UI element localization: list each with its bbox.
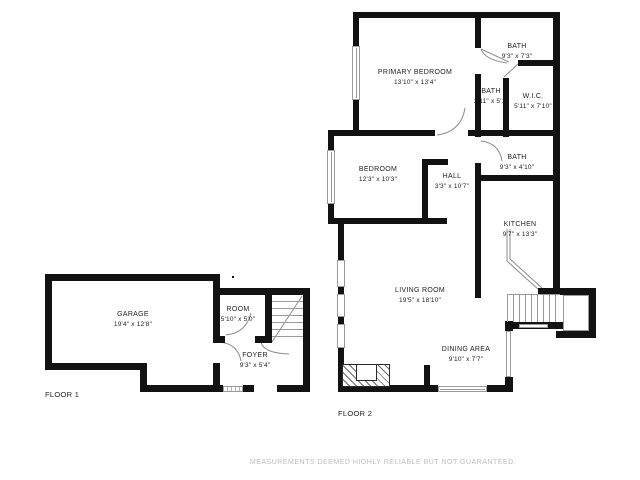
wall [303,288,310,392]
room-label-living-room: LIVING ROOM 19'5" x 18'10" [395,286,445,305]
wall [45,274,220,281]
wall [213,336,225,343]
room-dims: 5'10" x 5'0" [221,315,255,324]
room-name: BATH [500,153,534,163]
room-dims: 9'10" x 7'7" [442,355,490,364]
room-label-garage: GARAGE 19'4" x 12'8" [114,310,152,329]
tick-mark [366,132,368,134]
tick-mark [341,232,343,234]
window [337,324,345,348]
wall [338,287,344,294]
room-name: BATH [502,42,533,52]
room-name: PRIMARY BEDROOM [378,68,452,78]
window [438,386,487,392]
room-dims: 19'4" x 12'8" [114,320,152,329]
staircase-floor1 [272,295,303,342]
wall [338,317,344,324]
wall [328,136,334,150]
disclaimer-text: MEASUREMENTS DEEMED HIGHLY RELIABLE BUT … [250,459,516,466]
room-name: W.I.C. [514,92,552,102]
wall [243,385,254,392]
room-label-bath-small: BATH 2'11" x 5'1" [474,87,508,106]
window [506,331,511,377]
wall [475,163,481,298]
window [519,324,548,328]
wall [353,12,560,18]
staircase-floor2 [507,294,560,322]
wall [505,377,513,392]
wall [213,363,220,392]
wall [475,175,560,181]
window [223,386,243,392]
fireplace-firebox [356,364,377,381]
wall [328,130,435,136]
room-dims: 3'3" x 10'7" [435,182,469,191]
wall [338,218,344,260]
room-label-bath-top: BATH 9'3" x 7'3" [502,42,533,61]
room-dims: 9'7" x 13'3" [503,230,537,239]
room-label-dining-area: DINING AREA 9'10" x 7'7" [442,345,490,364]
tick-mark [390,220,392,222]
floor2-label: FLOOR 2 [338,409,372,418]
room-name: DINING AREA [442,345,490,355]
window [327,150,335,204]
tick-mark [128,365,130,367]
wall [424,365,430,392]
wall [422,159,448,165]
tick-mark [505,14,507,16]
room-dims: 9'3" x 7'3" [502,52,533,61]
wall [556,331,596,338]
room-label-bedroom: BEDROOM 12'3" x 10'3" [359,165,397,184]
wall [213,274,220,342]
room-name: ROOM [221,305,255,315]
bay-window [563,295,589,331]
tick-mark [412,387,414,389]
room-dims: 2'11" x 5'1" [474,97,508,106]
wall [353,12,359,48]
room-name: FOYER [240,351,271,361]
room-dims: 13'10" x 13'4" [378,78,452,87]
room-label-bath-mid: BATH 9'3" x 4'10" [500,153,534,172]
room-name: GARAGE [114,310,152,320]
room-dims: 5'11" x 7'10" [514,102,552,111]
room-name: BEDROOM [359,165,397,175]
room-name: KITCHEN [503,220,537,230]
tick-mark [198,387,200,389]
room-name: BATH [474,87,508,97]
wall [45,274,52,370]
room-name: LIVING ROOM [395,286,445,296]
door-leaf [504,64,518,77]
room-label-wic: W.I.C. 5'11" x 7'10" [514,92,552,111]
wall [475,12,481,48]
wall [45,363,147,370]
wall [140,385,223,392]
wall [553,12,560,295]
room-label-primary-bedroom: PRIMARY BEDROOM 13'10" x 13'4" [378,68,452,87]
tick-mark [556,130,558,132]
room-label-hall: HALL 3'3" x 10'7" [435,172,469,191]
room-dims: 12'3" x 10'3" [359,175,397,184]
room-name: HALL [435,172,469,182]
wall [255,336,272,343]
window [337,294,345,317]
wall [468,130,560,136]
room-label-kitchen: KITCHEN 9'7" x 13'3" [503,220,537,239]
room-label-foyer: FOYER 9'3" x 5'4" [240,351,271,370]
door-swing [437,108,465,135]
floor1-label: FLOOR 1 [45,390,79,399]
wall [422,159,428,224]
window [337,260,345,287]
room-label-room: ROOM 5'10" x 5'0" [221,305,255,324]
floor-plan: GARAGE 19'4" x 12'8" ROOM 5'10" x 5'0" F… [0,0,640,480]
room-dims: 19'5" x 18'10" [395,296,445,305]
door-swing [220,342,241,361]
thin-line-overlay [0,0,640,480]
room-dims: 9'3" x 5'4" [240,361,271,370]
wall [328,218,447,224]
tick-mark [477,254,479,256]
room-dims: 9'3" x 4'10" [500,163,534,172]
window [352,46,360,100]
wall [265,295,272,342]
tick-mark [232,276,234,278]
tick-mark [412,14,414,16]
wall [213,288,310,295]
tick-mark [521,132,523,134]
